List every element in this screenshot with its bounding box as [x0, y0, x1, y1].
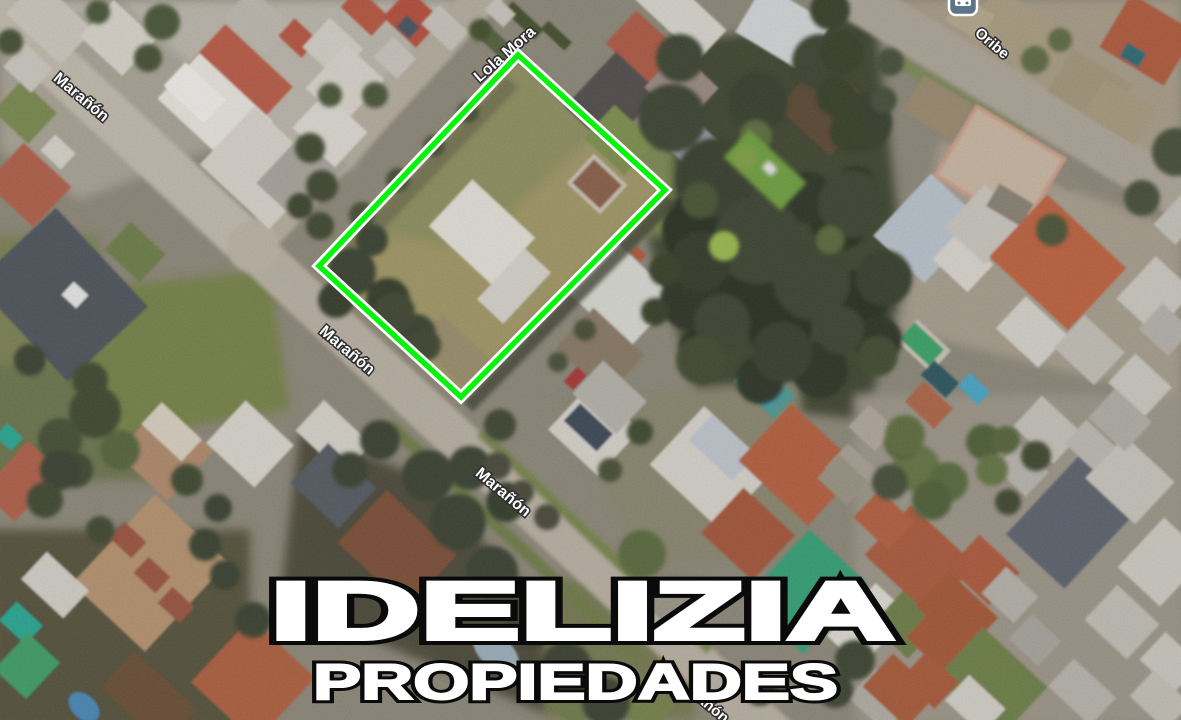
- svg-text:IDELIZIA: IDELIZIA: [270, 566, 895, 657]
- svg-text:PROPIEDADES: PROPIEDADES: [313, 654, 838, 710]
